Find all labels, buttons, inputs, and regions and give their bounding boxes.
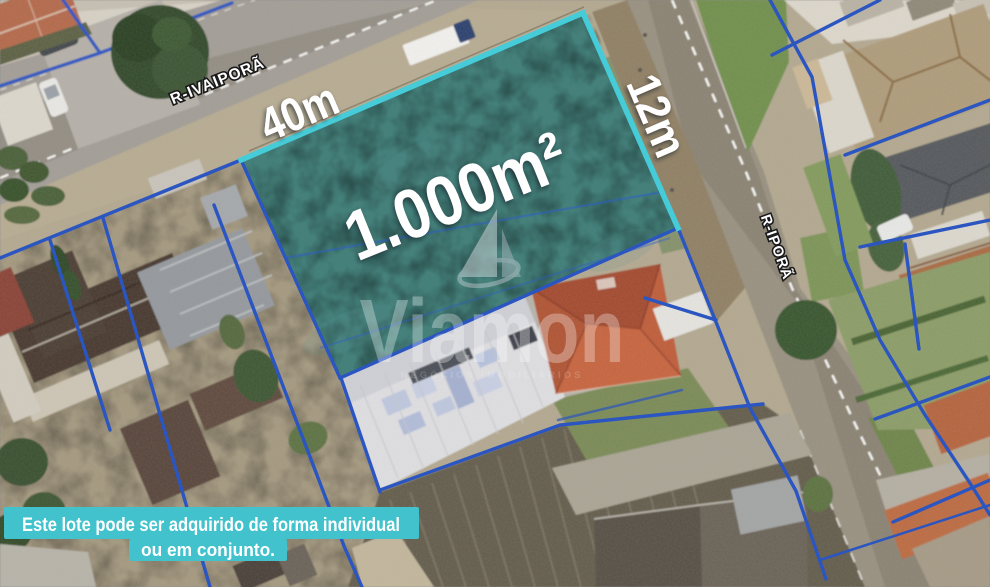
svg-text:NEGÓCIOS IMOBILIÁRIOS: NEGÓCIOS IMOBILIÁRIOS [401, 369, 584, 381]
svg-text:Viamon: Viamon [360, 282, 625, 382]
svg-text:Este lote pode ser adquirido d: Este lote pode ser adquirido de forma in… [22, 515, 400, 536]
svg-text:ou em conjunto.: ou em conjunto. [141, 540, 275, 560]
